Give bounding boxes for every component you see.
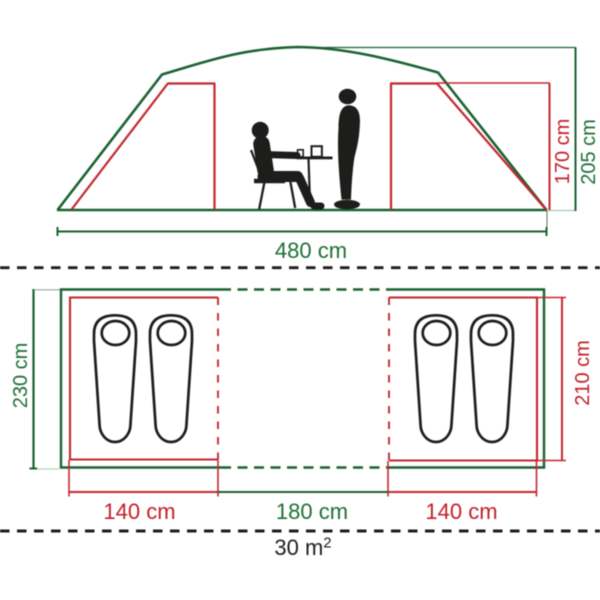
svg-text:480 cm: 480 cm — [275, 238, 347, 263]
svg-text:180 cm: 180 cm — [276, 499, 348, 524]
svg-text:170 cm: 170 cm — [552, 119, 574, 185]
svg-text:210 cm: 210 cm — [572, 340, 594, 406]
svg-text:140 cm: 140 cm — [425, 499, 497, 524]
svg-text:30 m2: 30 m2 — [274, 535, 331, 561]
svg-text:205 cm: 205 cm — [578, 119, 600, 185]
svg-text:140 cm: 140 cm — [103, 499, 175, 524]
svg-text:230 cm: 230 cm — [10, 343, 32, 409]
